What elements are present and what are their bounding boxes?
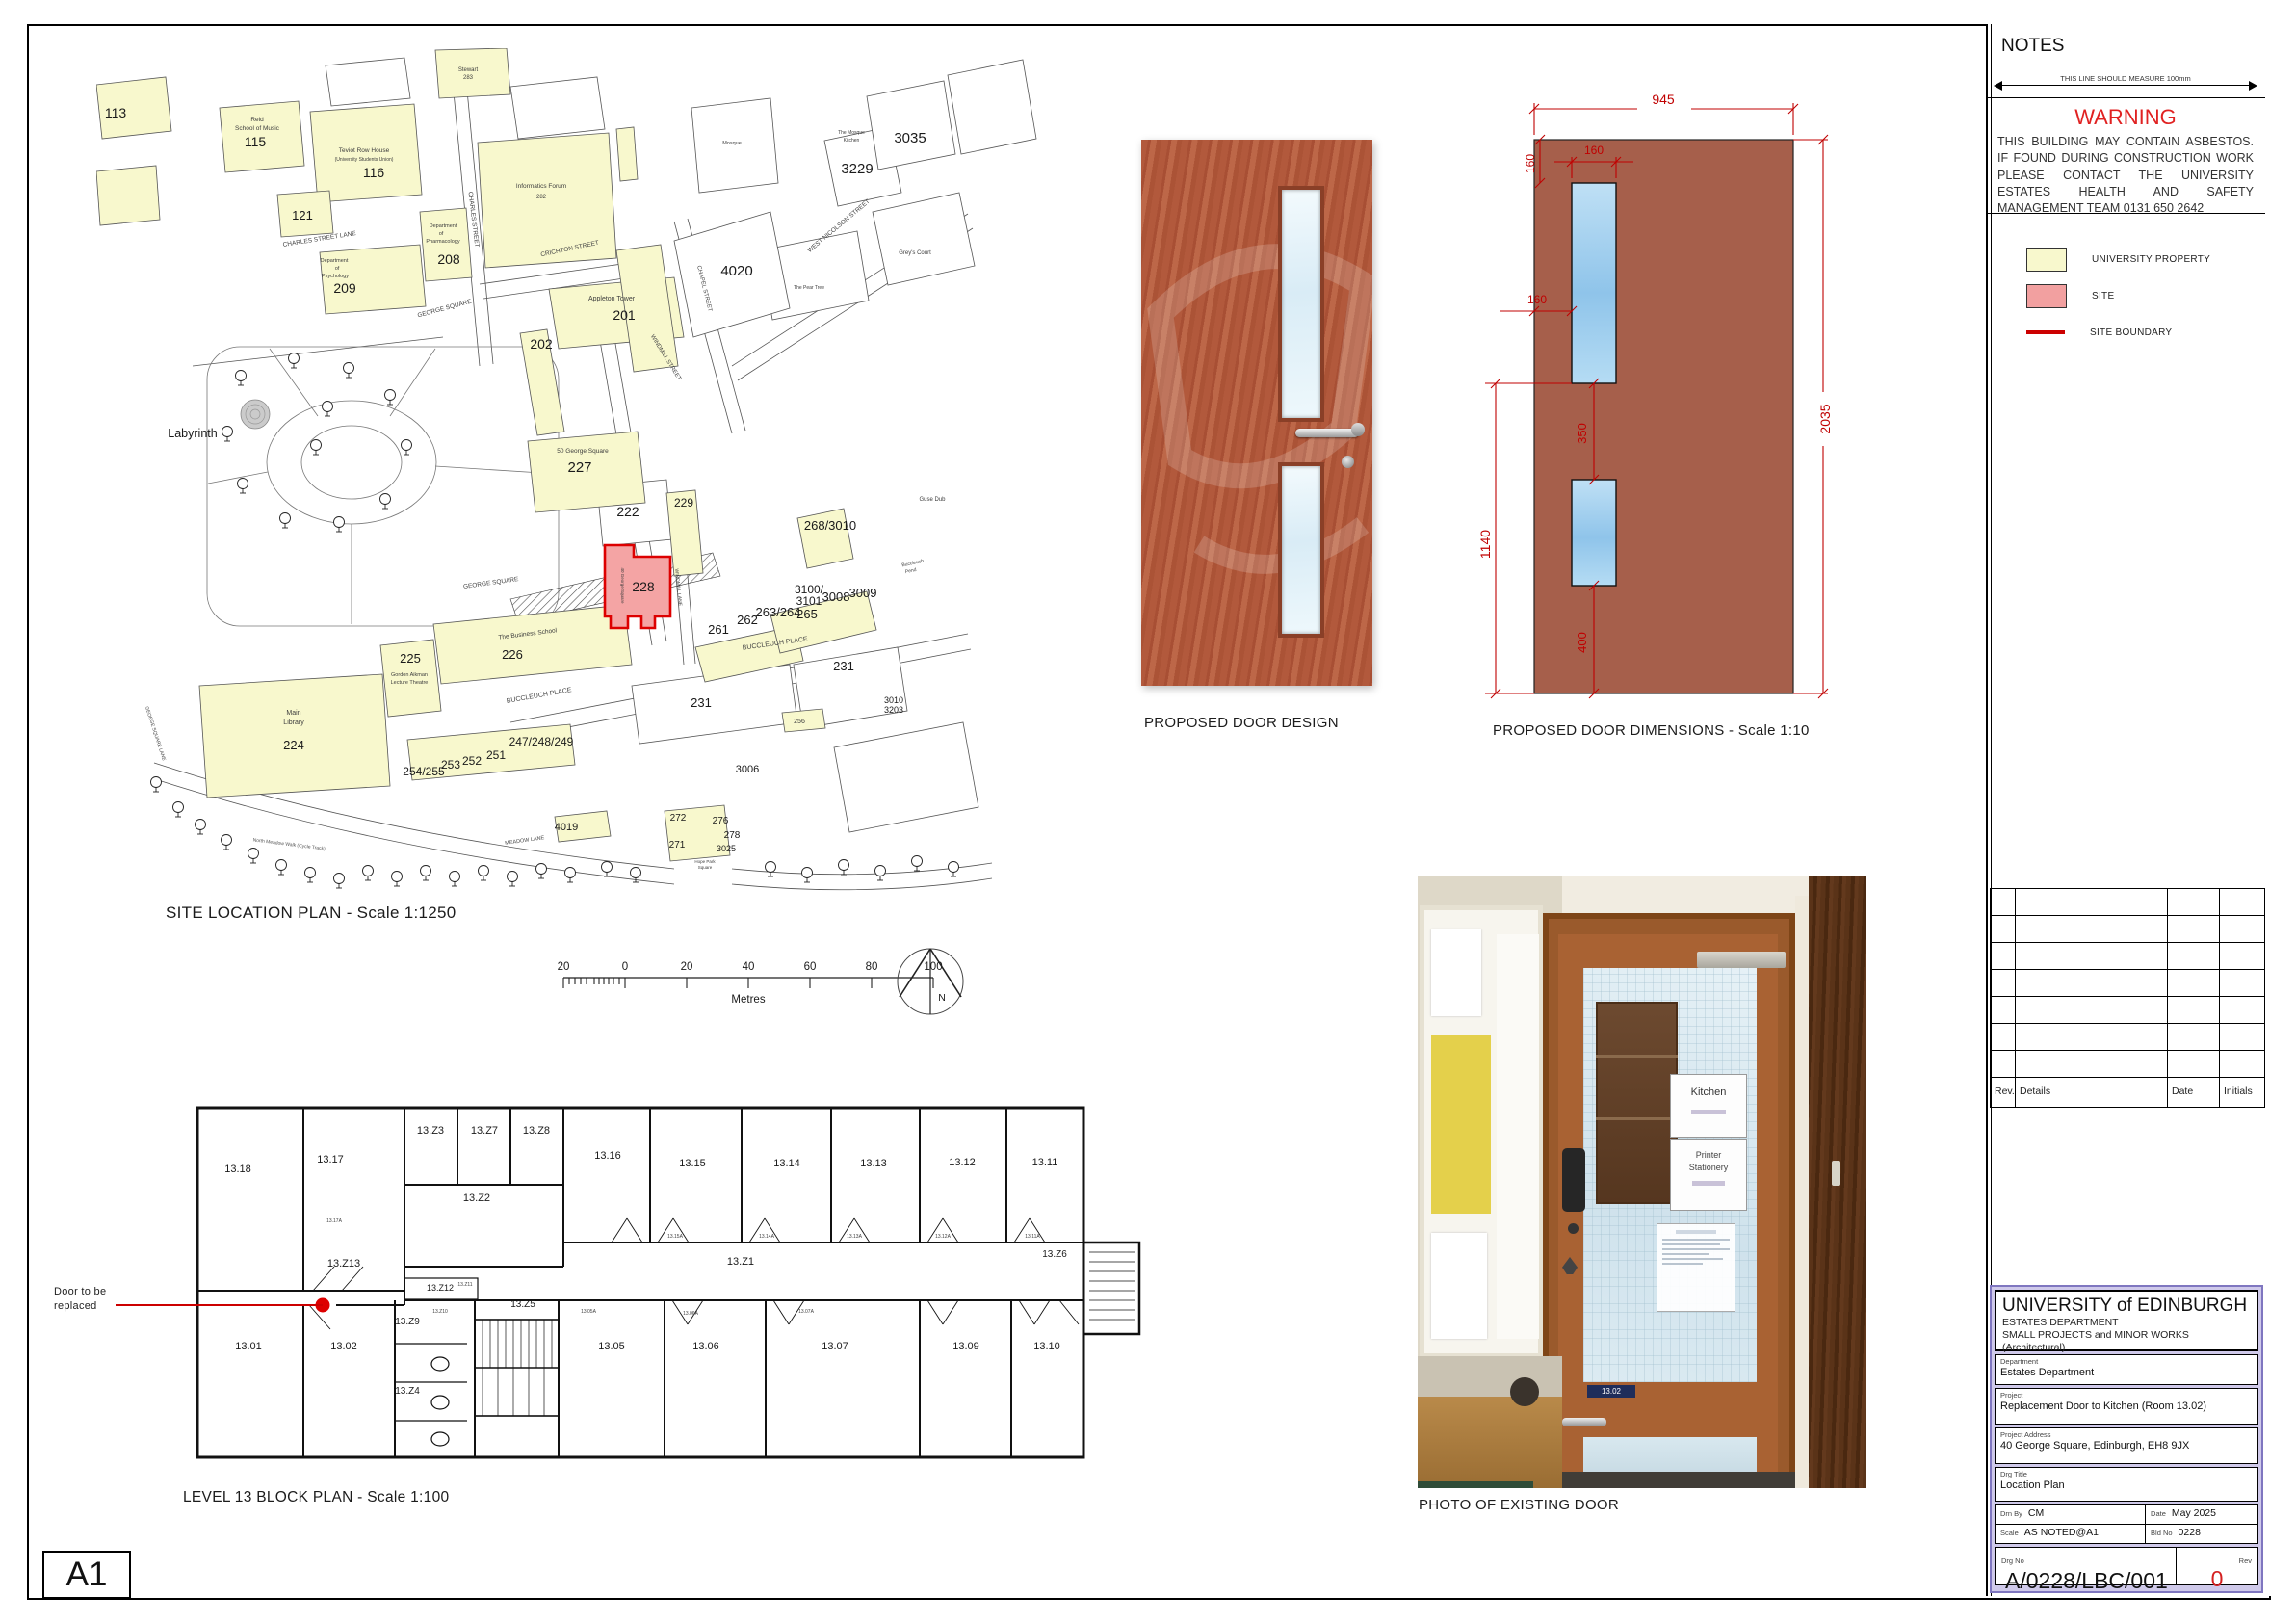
plan-room-label: 13.13A [847,1234,863,1240]
plan-room-label: 13.Z13 [327,1258,360,1269]
dimension-label: 945 [1652,92,1675,107]
revision-row [1991,1024,2264,1051]
notes-title: NOTES [2001,36,2064,57]
legend-swatch [2026,330,2065,334]
desk-grommet [1510,1377,1539,1406]
map-label: 3203 [884,705,903,715]
legend-row: UNIVERSITY PROPERTY [2026,248,2248,271]
field-label: Drg No [2001,1557,2024,1565]
revision-cell [2220,997,2264,1024]
map-label: 3025 [717,844,736,853]
plan-room-label: 13.Z11 [457,1282,472,1288]
level13-block-plan: 13.1813.1713.Z313.Z713.Z813.Z213.1613.15… [188,1093,1146,1474]
plan-room-label: 13.Z9 [395,1317,420,1327]
map-label: 272 [670,813,687,824]
revision-cell: . [2016,1051,2168,1078]
floor [1562,1472,1795,1488]
plan-room-label: 13.11A [1025,1234,1040,1240]
revision-cell [2220,970,2264,997]
map-label: Mosque [722,141,742,146]
plan-room-label: 13.12A [935,1234,952,1240]
scale-bar-label: 0 [622,961,628,973]
revision-cell [2168,943,2220,970]
revision-cell [2168,916,2220,943]
map-label: of [335,266,340,272]
revision-cell [1991,997,2016,1024]
map-label: 3229 [841,161,873,177]
map-label: 271 [669,840,686,850]
revision-cell [2016,889,2168,916]
printer-sign-line1: Printer [1671,1150,1746,1160]
legend-swatch [2026,248,2067,272]
org-dept1: ESTATES DEPARTMENT [2002,1317,2251,1329]
watermark-shield-icon [1141,140,1372,686]
revision-header-row: Rev.DetailsDateInitials [1991,1078,2264,1108]
revision-row [1991,943,2264,970]
field-label: Bld No [2151,1529,2173,1537]
scale-bar-label: 60 [804,961,817,973]
revision-cell [2016,916,2168,943]
printer-sign-line2: Stationery [1671,1163,1746,1172]
map-label: 253 [441,758,460,772]
org-dept2: SMALL PROJECTS and MINOR WORKS (Architec… [2002,1329,2251,1354]
legend-label: SITE BOUNDARY [2090,327,2172,338]
notice-paper [1431,1233,1487,1339]
plan-room-label: 13.Z12 [427,1283,454,1293]
map-label: BUCCLEUCH PLACE [506,687,572,705]
field-label: Project Address [2000,1430,2253,1439]
site-location-plan: 113ReidSchool of Music115Teviot Row Hous… [96,48,1040,896]
drawing-sheet: 113ReidSchool of Music115Teviot Row Hous… [0,0,2296,1622]
door-design-caption: PROPOSED DOOR DESIGN [1144,715,1339,731]
field-department: Department Estates Department [1995,1354,2258,1385]
north-label: N [938,992,946,1004]
plan-room-label: 13.Z7 [471,1125,498,1137]
wooden-desk [1418,1397,1562,1488]
field-label: Scale [2000,1529,2019,1537]
dimension-label: 160 [1527,293,1547,306]
revision-cell [2168,970,2220,997]
map-label: 3101 [796,594,822,608]
plan-room-label: 13.16 [594,1150,621,1162]
door-vision-panel-lower [1278,462,1324,638]
revision-cell [2168,1024,2220,1051]
drg-no-value: A/0228/LBC/001 [2005,1568,2168,1594]
map-label: 3035 [894,130,926,146]
scale-bar-label: 20 [558,961,570,973]
revision-cell [1991,970,2016,997]
map-label: 226 [502,647,523,662]
other-buildings [326,58,1036,832]
map-label: 201 [613,307,636,323]
map-label: 261 [708,622,729,637]
map-label: 40 George Square [620,567,625,604]
revision-cell [2016,970,2168,997]
map-label: Grey's Court [899,250,931,256]
field-meta: Drn ByCM DateMay 2025 ScaleAS NOTED@A1 B… [1995,1504,2258,1544]
existing-door-handle [1562,1418,1606,1426]
map-label: North Meadow Walk (Cycle Track) [252,837,326,851]
field-label: Rev [2239,1557,2252,1565]
lock-cylinder [1568,1223,1578,1234]
scale-bar-label: 40 [743,961,755,973]
field-value: 0228 [2179,1527,2201,1538]
plan-room-label: 13.09 [952,1341,979,1352]
revision-cell [1991,916,2016,943]
warning-text: THIS BUILDING MAY CONTAIN ASBESTOS. IF F… [1997,134,2254,217]
photo-existing-door: Kitchen Printer Stationery 13.02 [1418,876,1865,1488]
door-keyhole [1342,456,1354,468]
map-label: 4019 [555,822,578,833]
plan-room-label: 13.Z4 [395,1386,420,1397]
revision-row: ... [1991,1051,2264,1078]
map-label: 4020 [720,263,752,279]
field-label: Department [2000,1357,2253,1366]
map-label: 116 [363,165,385,180]
revision-cell [2220,916,2264,943]
keypad-lock [1562,1148,1585,1212]
map-label: (University Students Union) [335,157,394,163]
plan-room-label: 13.01 [235,1341,262,1352]
legend-label: UNIVERSITY PROPERTY [2092,254,2210,265]
field-value: CM [2028,1507,2044,1519]
dimension-label: 160 [1524,154,1537,173]
plan-room-label: 13.15A [667,1234,684,1240]
notice-paper [1431,929,1481,1016]
map-label: Teviot Row House [339,147,390,154]
map-label: 228 [632,579,655,594]
map-label: 224 [283,738,304,752]
plan-room-label: 13.Z10 [432,1309,448,1315]
door-annotation-line1: Door to be [54,1286,106,1297]
rev-value: 0 [2182,1566,2252,1592]
scale-bar-label: 20 [681,961,693,973]
north-arrow: N [886,939,975,1028]
revision-cell [2016,997,2168,1024]
plan-room-label: 13.17A [326,1218,343,1224]
map-label: Stewart [458,67,479,73]
map-label: Kitchen [844,138,860,144]
field-value: May 2025 [2172,1507,2216,1519]
map-label: Appleton Tower [588,296,636,302]
block-plan-caption: LEVEL 13 BLOCK PLAN - Scale 1:100 [183,1489,449,1506]
field-project-address: Project Address 40 George Square, Edinbu… [1995,1427,2258,1464]
door-handle [1295,429,1359,437]
map-label: Library [283,719,304,726]
shelf-line [1596,1117,1678,1120]
map-label: Reid [250,117,264,123]
warning-title: WARNING [1997,105,2254,130]
revision-cell [1991,889,2016,916]
field-value: 40 George Square, Edinburgh, EH8 9JX [2000,1440,2253,1452]
legend: UNIVERSITY PROPERTYSITESITE BOUNDARY [2026,248,2248,357]
notice-paper [1497,934,1539,1339]
field-label: Date [2151,1509,2166,1518]
map-label: Psychology [322,274,349,279]
revision-row [1991,970,2264,997]
map-label: 263/264 [756,605,801,619]
map-label: 252 [462,754,482,768]
scale-bar-label: 80 [866,961,878,973]
field-label: Drn By [2000,1509,2022,1518]
map-label: Lecture Theatre [391,680,429,686]
room-number-plate: 13.02 [1587,1385,1635,1398]
plan-room-label: 13.Z8 [523,1125,550,1137]
kitchen-sign-text: Kitchen [1671,1086,1746,1098]
revision-cell [2220,889,2264,916]
map-label: 247/248/249 [509,735,574,748]
field-value: Location Plan [2000,1479,2253,1491]
door-annotation-line2: replaced [54,1300,97,1312]
measure-line: THIS LINE SHOULD MEASURE 100mm [1996,74,2256,88]
map-label: 3009 [849,586,877,600]
door-dims-caption: PROPOSED DOOR DIMENSIONS - Scale 1:10 [1493,722,1810,739]
plan-room-label: 13.05A [581,1309,597,1315]
map-label: 50 George Square [557,448,609,455]
map-label: 209 [333,280,356,296]
map-label: 3006 [736,764,759,775]
map-label: 251 [486,748,506,762]
map-label: Labyrinth [168,427,217,440]
kitchen-sign: Kitchen [1670,1074,1747,1138]
notice-yellow-paper [1431,1035,1491,1214]
sign-logo [1691,1110,1726,1114]
map-label: 254/255 [403,765,445,778]
plan-room-label: 13.10 [1033,1341,1060,1352]
revision-cell [1991,1051,2016,1078]
legend-row: SITE BOUNDARY [2026,321,2248,344]
revision-cell: Rev. [1991,1078,2016,1108]
revision-cell [1991,1024,2016,1051]
plan-room-label: 13.14A [759,1234,775,1240]
map-label: Square [698,865,713,870]
door-closer [1697,952,1786,968]
map-label: 3010 [884,695,903,705]
map-label: 256 [794,719,805,725]
revision-row [1991,997,2264,1024]
chair-sliver [1418,1481,1533,1488]
map-label: 283 [463,75,474,81]
sign-logo [1692,1181,1725,1186]
map-label: 268/3010 [804,518,856,533]
map-label: 222 [616,504,639,519]
map-label: 115 [245,134,267,149]
plan-labels: 13.1813.1713.Z313.Z713.Z813.Z213.1613.15… [224,1125,1067,1397]
revision-cell [2168,997,2220,1024]
field-value: Estates Department [2000,1367,2253,1378]
map-label: 208 [437,251,460,267]
warning-block: WARNING THIS BUILDING MAY CONTAIN ASBEST… [1997,105,2254,217]
revision-cell: Date [2168,1078,2220,1108]
plan-room-label: 13.Z1 [727,1256,754,1268]
legend-row: SITE [2026,284,2248,307]
map-label: MEADOW LANE [505,835,545,847]
scale-bar-label: Metres [731,994,765,1006]
dimension-label: 350 [1575,423,1589,444]
plan-room-label: 13.18 [224,1164,251,1175]
map-label: The Pear Tree [794,285,824,291]
revision-cell [2220,943,2264,970]
dimension-label: 1140 [1477,530,1493,559]
field-drg-no: Drg No A/0228/LBC/001 Rev 0 [1995,1547,2258,1585]
labyrinth [241,400,270,429]
dimension-label: 160 [1584,144,1604,157]
glass-reflection-shelving [1596,1002,1678,1204]
plan-room-label: 13.06A [683,1311,699,1317]
plan-room-label: 13.Z2 [463,1192,490,1204]
proposed-door-dimensions: 94516016016020353501140400 [1445,82,1859,756]
site-plan-caption: SITE LOCATION PLAN - Scale 1:1250 [166,903,457,923]
notice-sheet [1657,1223,1735,1312]
map-label: Department [430,223,457,229]
map-label: 227 [567,459,591,476]
map-label: GEORGE SQUARE LANE [143,706,167,763]
revision-cell [2016,1024,2168,1051]
map-label: The Mosque [838,130,865,136]
field-project: Project Replacement Door to Kitchen (Roo… [1995,1388,2258,1425]
plan-room-label: 13.07 [822,1341,848,1352]
door-jamb [1795,896,1809,1488]
revision-cell: Initials [2220,1078,2264,1108]
proposed-door-design-image [1141,140,1372,686]
plan-room-label: 13.06 [692,1341,719,1352]
map-label: 276 [713,816,729,826]
upper-glass [1572,183,1616,383]
map-label: 265 [796,607,818,621]
revision-cell [1991,943,2016,970]
map-label: Pend [904,567,917,575]
plan-room-label: 13.14 [773,1158,800,1169]
plan-room-label: 13.12 [949,1157,976,1168]
revision-cell [2220,1024,2264,1051]
revision-cell: . [2220,1051,2264,1078]
plan-room-label: 13.02 [330,1341,357,1352]
org-box: UNIVERSITY of EDINBURGH ESTATES DEPARTME… [1995,1290,2258,1351]
door-vision-panel-upper [1278,186,1324,422]
plan-room-label: 13.13 [860,1158,887,1169]
field-label: Project [2000,1391,2253,1400]
field-value: Replacement Door to Kitchen (Room 13.02) [2000,1400,2253,1412]
map-label: of [439,231,444,237]
legend-swatch [2026,284,2067,308]
revision-cell: . [2168,1051,2220,1078]
map-label: 231 [833,659,854,673]
field-label: Drg Title [2000,1470,2253,1478]
revision-table: ...Rev.DetailsDateInitials [1990,888,2265,1108]
door-handle-rose [1351,423,1365,436]
annotation-leader-line [116,1304,323,1306]
revision-row [1991,889,2264,916]
plan-room-label: 13.11 [1032,1157,1058,1168]
revision-cell [2168,889,2220,916]
lower-glass [1572,480,1616,586]
map-label: Main [286,710,300,717]
map-label: 282 [536,195,547,200]
map-label: Gordon Aikman [391,672,428,678]
door-annotation: Door to be replaced [54,1285,106,1314]
map-label: 121 [292,208,313,222]
sheet-size-label: A1 [42,1551,131,1599]
map-label: 113 [105,105,127,120]
map-label: 231 [691,695,712,710]
photo-caption: PHOTO OF EXISTING DOOR [1419,1497,1619,1513]
dimension-label: 2035 [1817,404,1833,433]
revision-cell [2016,943,2168,970]
revision-row [1991,916,2264,943]
field-value: AS NOTED@A1 [2024,1527,2099,1538]
map-label: Guse Dub [919,497,946,503]
map-label: Department [321,258,349,264]
map-label: School of Music [235,125,280,132]
plan-room-label: 13.07A [798,1309,815,1315]
plan-room-label: 13.05 [598,1341,625,1352]
plan-room-label: 13.15 [679,1158,706,1169]
notes-panel: NOTES THIS LINE SHOULD MEASURE 100mm WAR… [1986,24,2271,1596]
map-label: Hope Park [694,859,716,864]
printer-sign: Printer Stationery [1670,1139,1747,1211]
map-label: 225 [400,651,421,666]
map-label: 229 [674,496,693,510]
plan-room-label: 13.17 [317,1154,344,1165]
open-door-lock [1832,1161,1840,1186]
revision-cell: Details [2016,1078,2168,1108]
map-label: Pharmacology [426,239,459,245]
dimension-label: 400 [1575,632,1589,653]
org-name: UNIVERSITY of EDINBURGH [2002,1295,2251,1317]
plan-room-label: 13.Z5 [510,1299,535,1310]
measure-line-text: THIS LINE SHOULD MEASURE 100mm [1996,74,2256,83]
map-label: 202 [530,336,553,352]
shelf-line [1596,1055,1678,1058]
map-label: 278 [724,830,741,841]
field-drg-title: Drg Title Location Plan [1995,1467,2258,1502]
map-label: GEORGE SQUARE [463,576,520,590]
plan-room-label: 13.Z3 [417,1125,444,1137]
title-block: UNIVERSITY of EDINBURGH ESTATES DEPARTME… [1990,1285,2263,1593]
plan-room-label: 13.Z6 [1042,1249,1067,1260]
legend-label: SITE [2092,291,2114,301]
map-label: 3008 [822,589,850,604]
map-label: Informatics Forum [516,183,566,190]
